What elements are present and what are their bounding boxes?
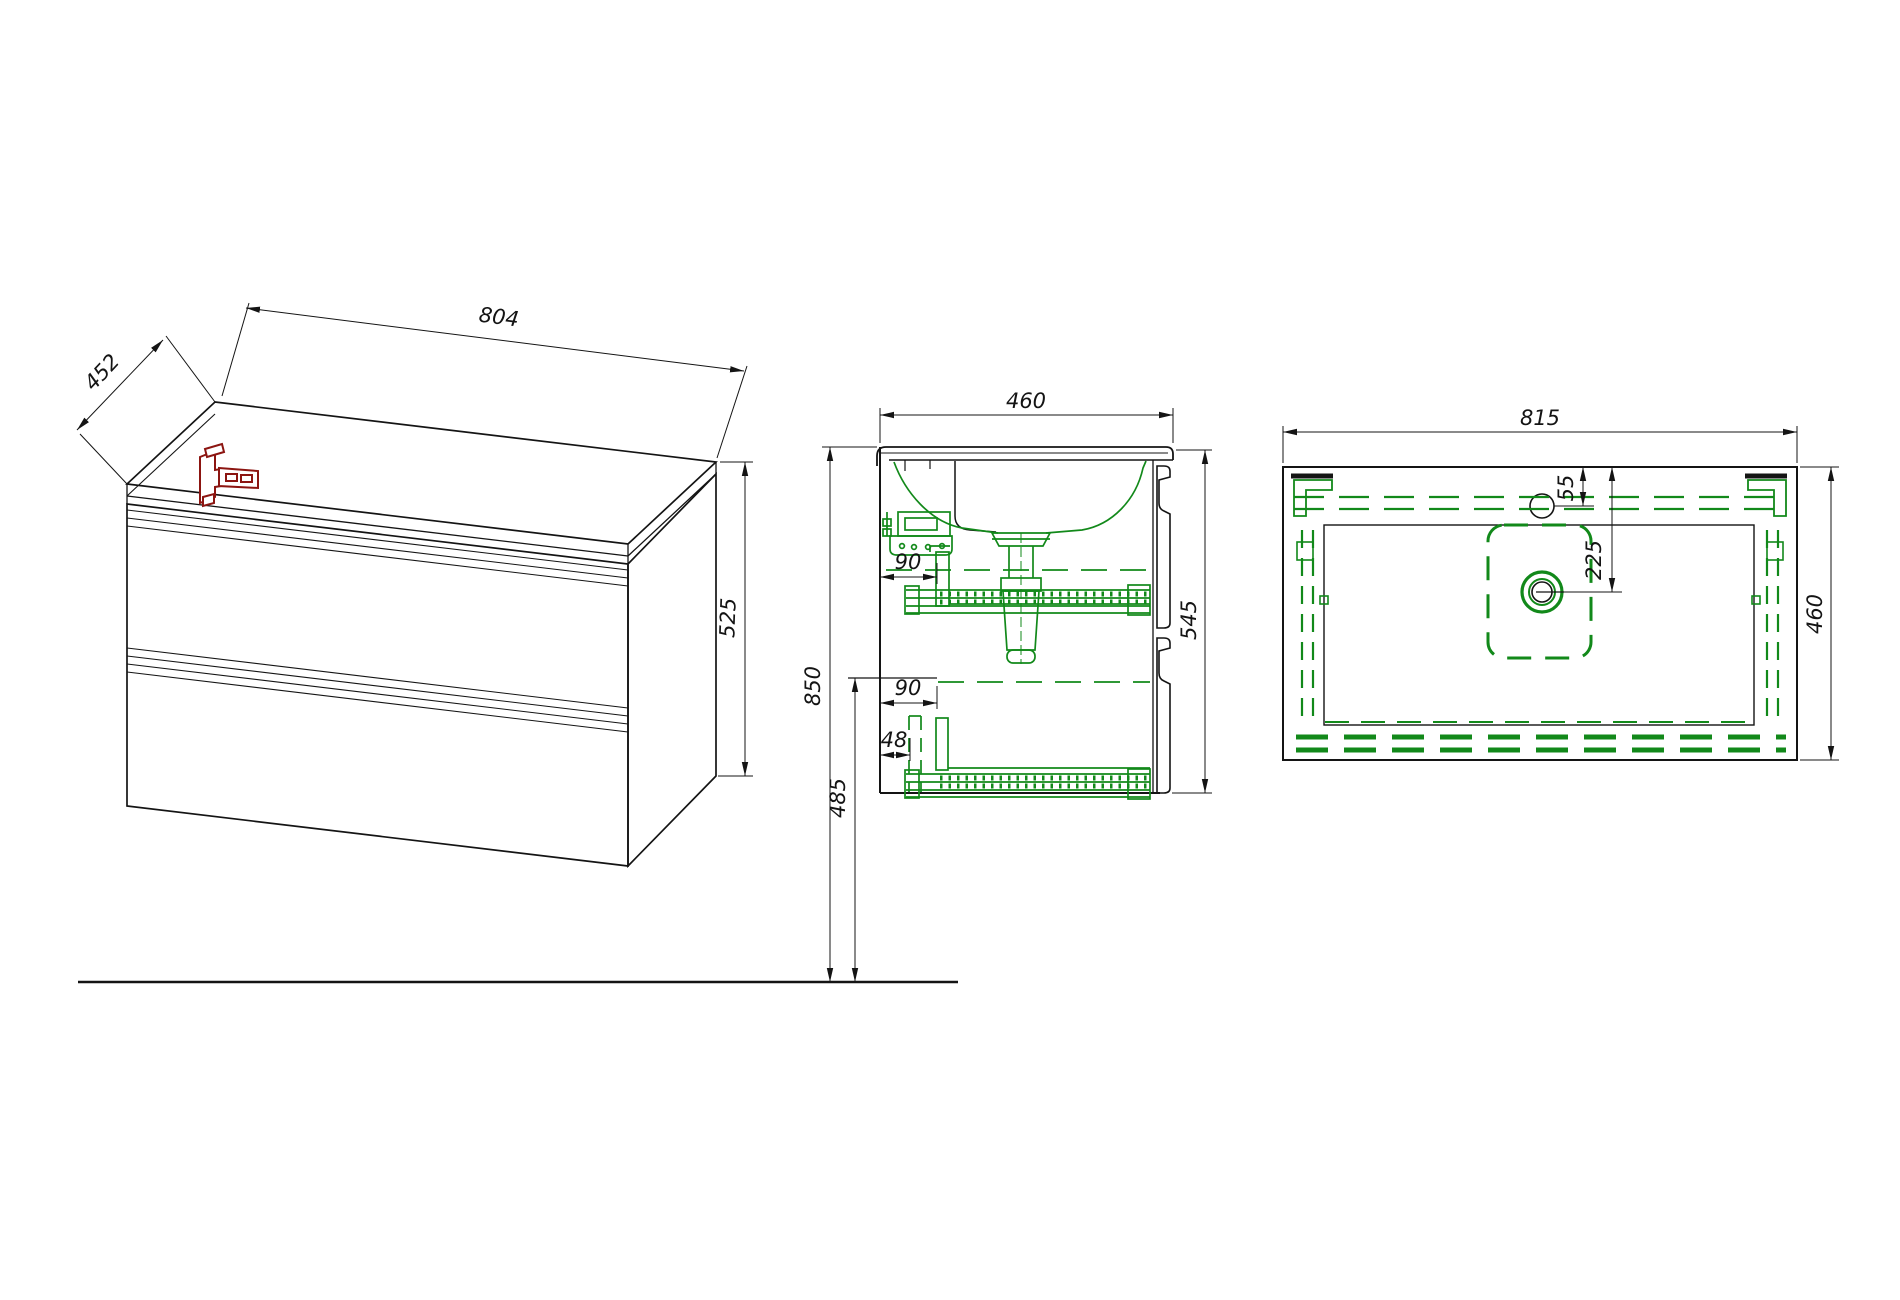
dim-815: 815: [1283, 406, 1797, 463]
section-countertop: [877, 447, 1173, 471]
dim-525: 525: [715, 462, 753, 776]
dim-plan-460: 460: [1800, 467, 1839, 760]
dim-55: 55: [1554, 467, 1594, 506]
dim-label-804: 804: [477, 303, 520, 332]
lower-drawer-slide: [905, 716, 1150, 799]
upper-drawer-front: [1157, 466, 1170, 628]
dim-545: 545: [1172, 450, 1212, 793]
dim-section-460: 460: [880, 389, 1173, 443]
dim-label-545: 545: [1177, 600, 1201, 640]
wall-bracket: [883, 512, 952, 555]
dim-90-lower: 90: [880, 676, 937, 709]
isometric-view: 804 452 525: [77, 303, 753, 866]
cabinet-front: [127, 504, 628, 866]
drawer-groove-lines: [127, 510, 628, 732]
section-view: 460 545 850 485 90 90: [801, 389, 1212, 982]
dim-label-48: 48: [881, 728, 908, 752]
dim-850: 850: [801, 447, 877, 982]
dim-452: 452: [77, 336, 215, 484]
dim-label-850: 850: [801, 666, 825, 706]
dim-label-90-upper: 90: [895, 550, 922, 574]
dim-label-460-plan: 460: [1803, 594, 1827, 634]
dim-48: 48: [880, 728, 910, 761]
lower-drawer-front: [1157, 638, 1170, 793]
basin-cut-line: [955, 461, 996, 532]
section-hidden-parts: [883, 461, 1150, 799]
dim-label-90-lower: 90: [895, 676, 922, 700]
top-view: 815 55 225 460: [1283, 406, 1839, 760]
dim-label-485: 485: [826, 778, 850, 818]
dim-label-225: 225: [1582, 540, 1606, 580]
technical-drawing-canvas: 804 452 525: [0, 0, 1900, 1300]
drawing-sheet: 804 452 525: [0, 0, 1900, 1300]
plan-hidden-structure: [1294, 480, 1786, 750]
dim-label-460-section: 460: [1006, 389, 1046, 413]
dim-label-55: 55: [1554, 475, 1578, 502]
dim-label-815: 815: [1520, 406, 1560, 430]
plan-basin-outline: [1324, 525, 1754, 725]
dim-label-525: 525: [715, 597, 740, 638]
upper-drawer-slide: [905, 546, 1150, 615]
